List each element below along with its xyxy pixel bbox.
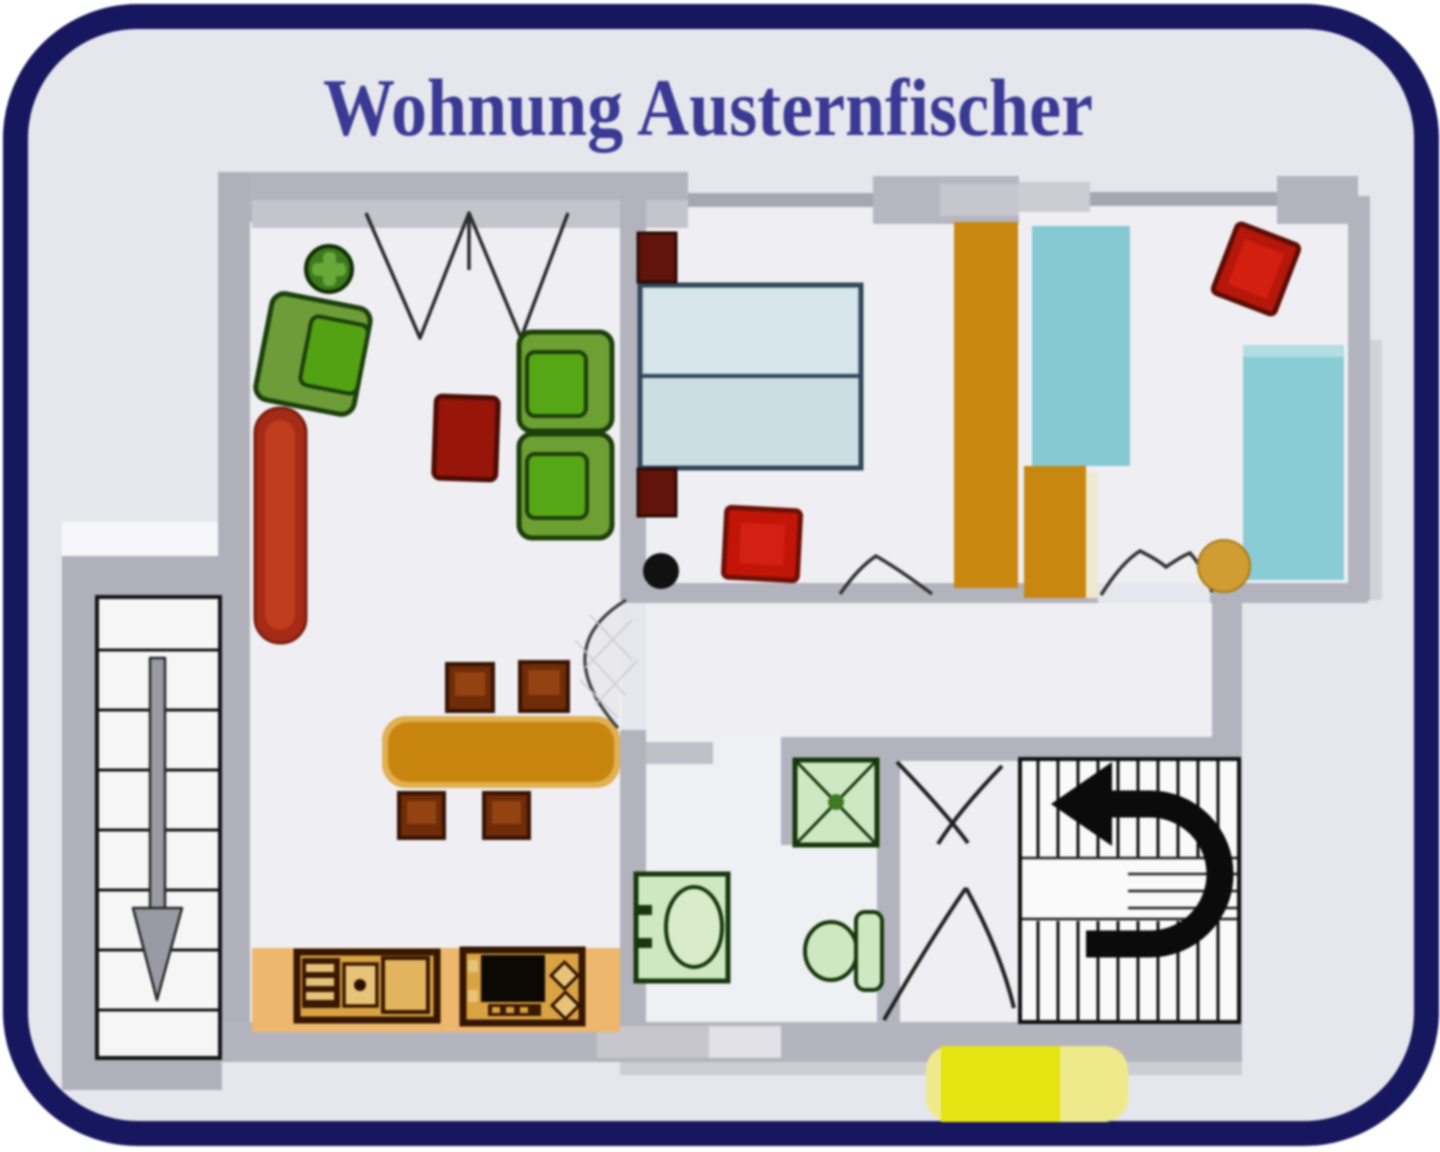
svg-text:Wohnung Austernfischer: Wohnung Austernfischer xyxy=(323,62,1093,153)
